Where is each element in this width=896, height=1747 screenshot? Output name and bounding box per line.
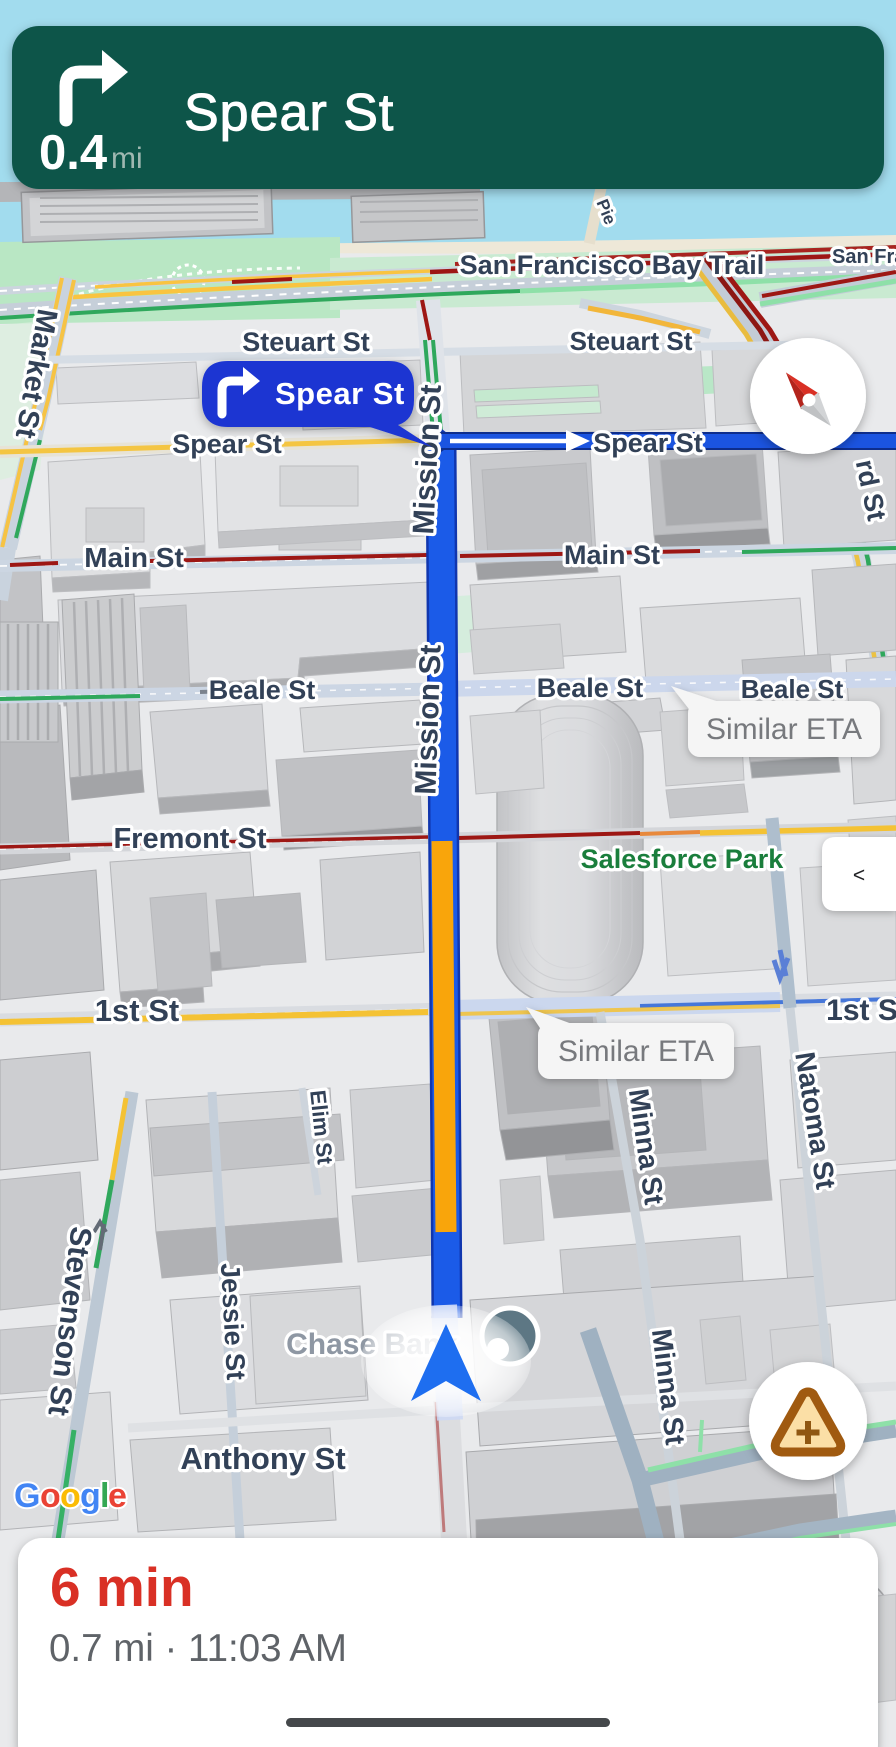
svg-text:0.7 mi · 11:03 AM: 0.7 mi · 11:03 AM: [49, 1627, 347, 1670]
svg-text:1st St: 1st St: [95, 993, 179, 1028]
svg-text:Similar ETA: Similar ETA: [706, 713, 862, 746]
svg-text:G: G: [14, 1477, 40, 1515]
svg-text:Mission St: Mission St: [409, 644, 447, 795]
svg-text:Spear St: Spear St: [184, 84, 394, 142]
svg-text:Similar ETA: Similar ETA: [558, 1035, 714, 1068]
svg-text:e: e: [108, 1477, 127, 1515]
svg-text:6 min: 6 min: [50, 1556, 194, 1618]
svg-text:Main St: Main St: [564, 540, 660, 570]
svg-text:Beale St: Beale St: [741, 674, 844, 704]
svg-text:Anthony St: Anthony St: [180, 1441, 345, 1476]
svg-text:Spear St: Spear St: [593, 428, 703, 458]
svg-text:San Fran: San Fran: [832, 246, 896, 268]
svg-text:mi: mi: [111, 142, 143, 175]
svg-text:Steuart St: Steuart St: [242, 327, 370, 357]
svg-text:1st S: 1st S: [826, 994, 896, 1027]
svg-text:o: o: [60, 1477, 81, 1515]
svg-text:Jessie St: Jessie St: [215, 1262, 251, 1381]
svg-text:Spear St: Spear St: [172, 429, 282, 459]
svg-text:Spear St: Spear St: [275, 376, 405, 411]
svg-text:0.4: 0.4: [39, 126, 107, 180]
svg-text:Fremont St: Fremont St: [113, 823, 266, 855]
svg-text:San Francisco Bay Trail: San Francisco Bay Trail: [460, 250, 765, 280]
svg-text:<: <: [853, 864, 865, 887]
svg-text:Main St: Main St: [84, 542, 184, 573]
svg-text:o: o: [40, 1477, 61, 1515]
svg-text:g: g: [80, 1477, 101, 1515]
svg-text:Steuart St: Steuart St: [570, 326, 693, 356]
svg-text:Beale St: Beale St: [537, 673, 644, 703]
svg-text:Beale St: Beale St: [209, 675, 316, 705]
svg-text:Salesforce Park: Salesforce Park: [581, 844, 785, 874]
